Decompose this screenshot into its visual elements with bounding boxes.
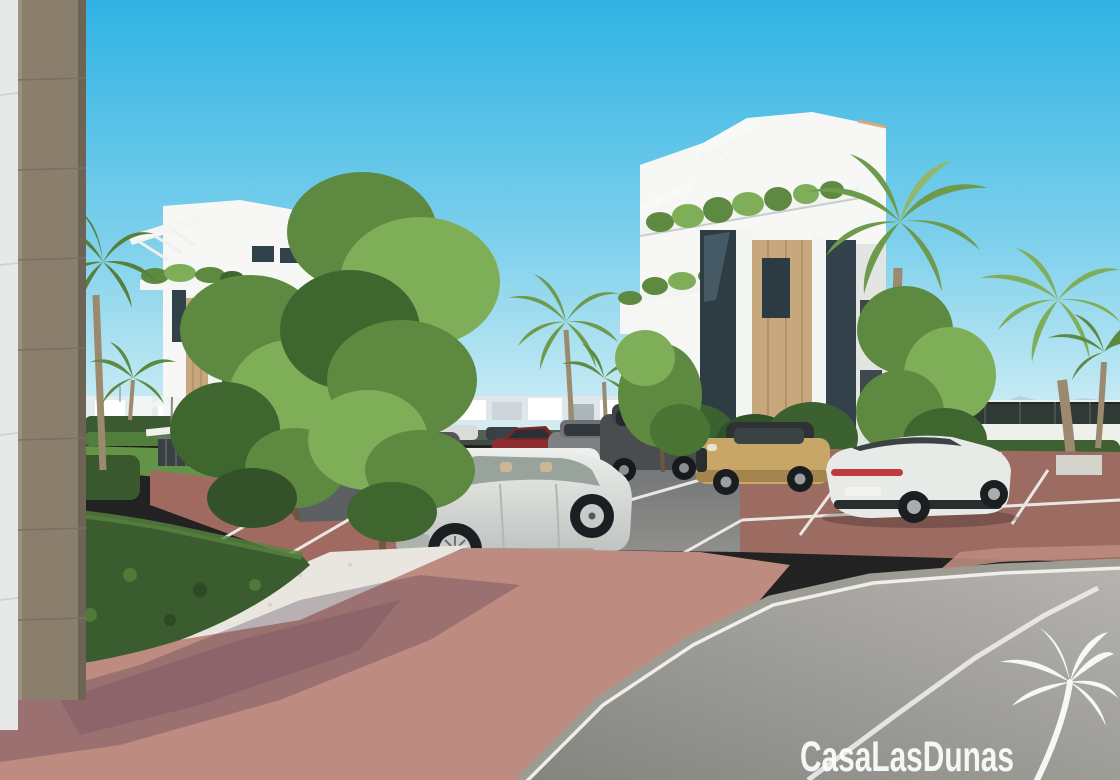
wood-column xyxy=(16,0,86,700)
architectural-render: CasaLasDunas xyxy=(0,0,1120,780)
left-building-window xyxy=(252,246,274,262)
watermark-text: CasaLasDunas xyxy=(800,733,1014,780)
white-wall-edge xyxy=(0,0,18,730)
car-white-sedan xyxy=(822,436,1018,528)
render-scene: CasaLasDunas xyxy=(0,0,1120,780)
